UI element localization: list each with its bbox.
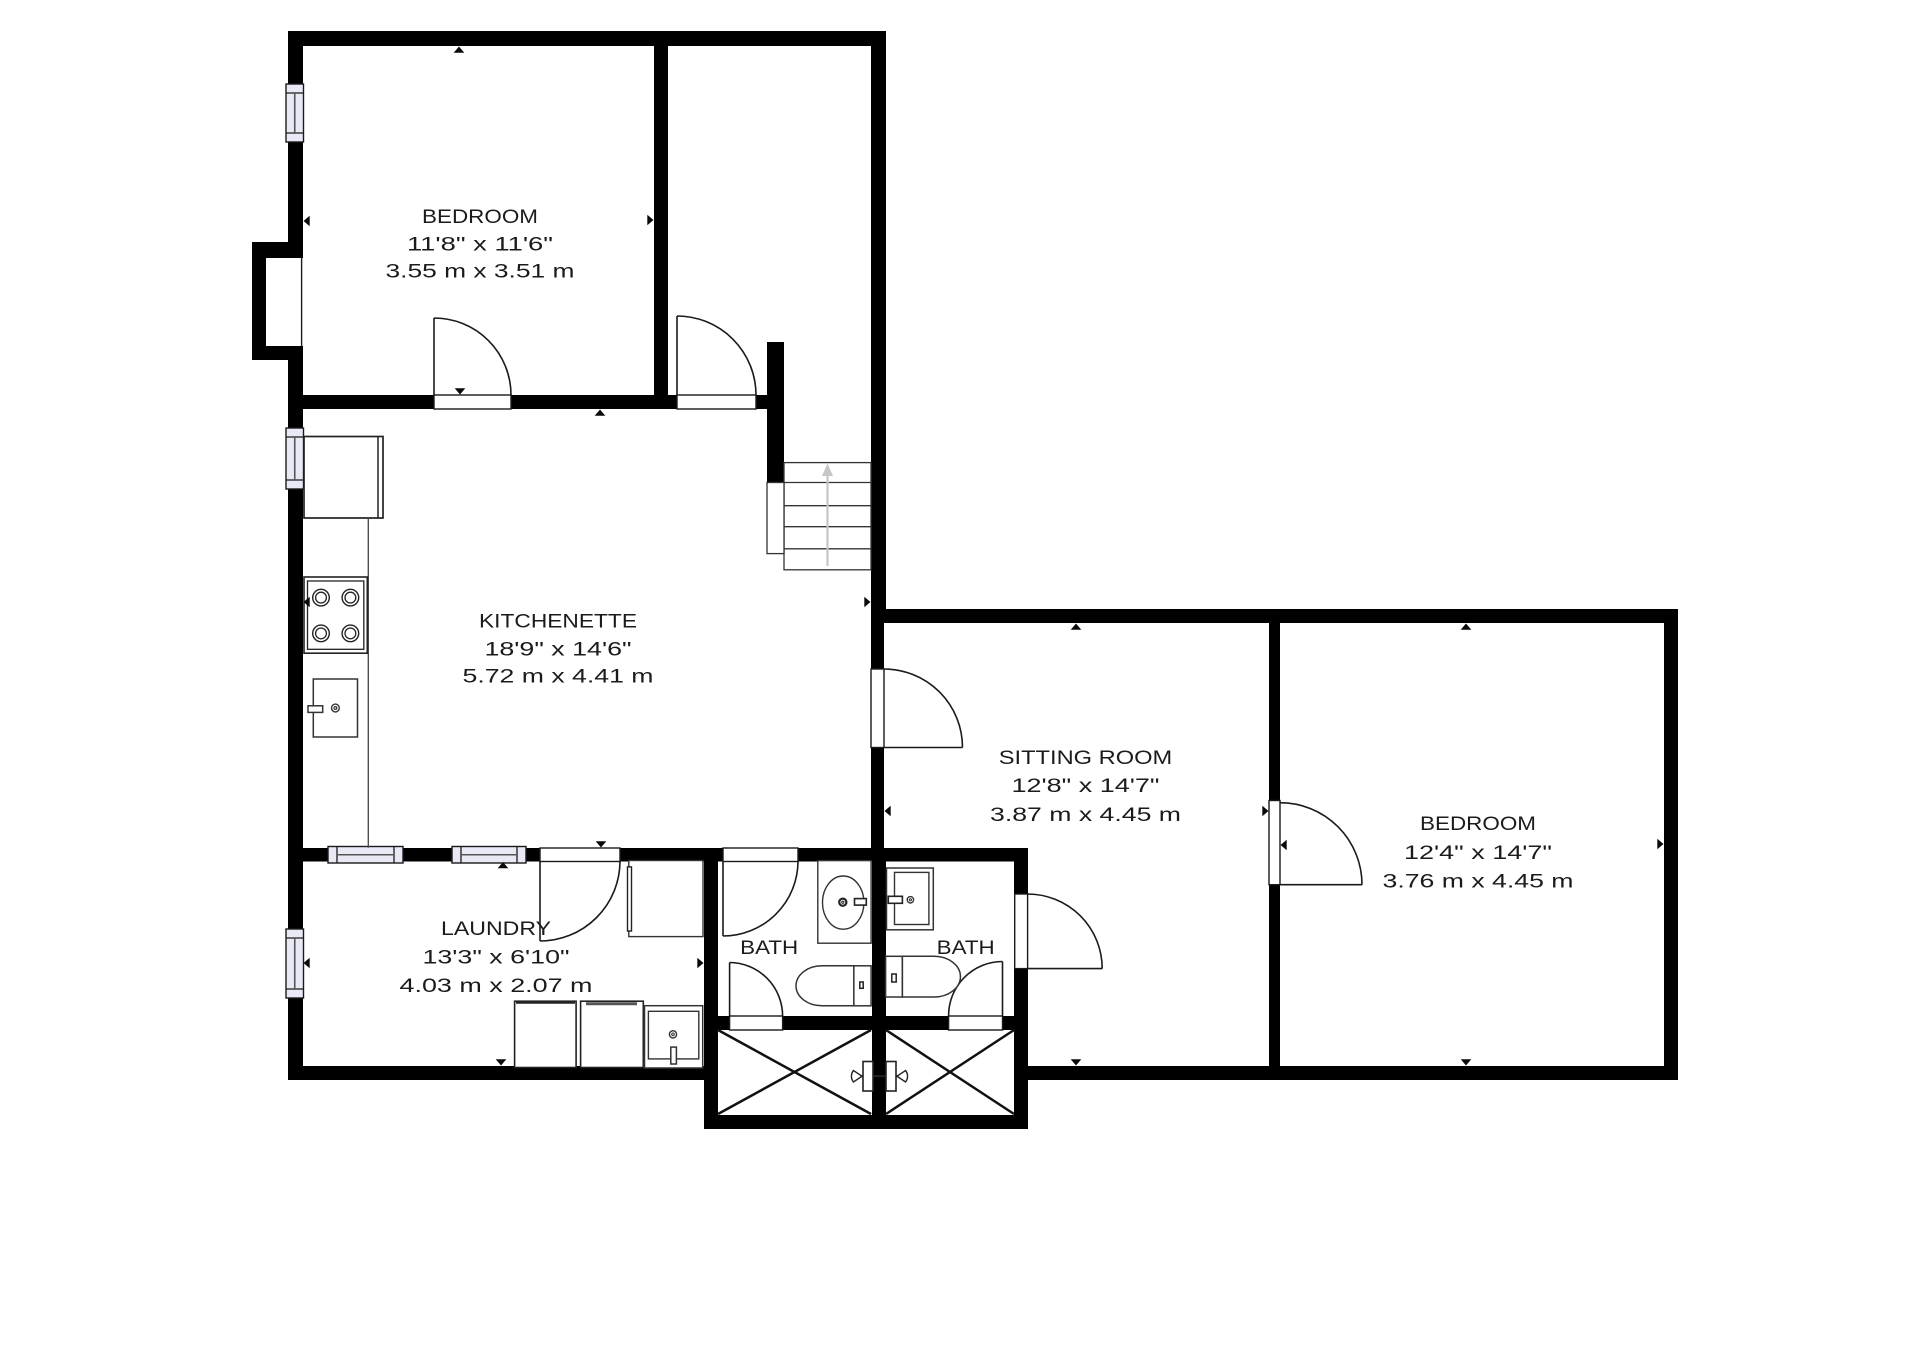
svg-text:BATH: BATH (937, 937, 995, 959)
svg-text:3.76 m x 4.45 m: 3.76 m x 4.45 m (1383, 870, 1574, 892)
svg-text:11'8" x 11'6": 11'8" x 11'6" (407, 234, 553, 256)
svg-text:KITCHENETTE: KITCHENETTE (479, 610, 637, 632)
svg-text:13'3" x 6'10": 13'3" x 6'10" (423, 946, 570, 968)
svg-text:5.72 m x 4.41 m: 5.72 m x 4.41 m (463, 666, 654, 688)
svg-text:3.55 m x 3.51 m: 3.55 m x 3.51 m (386, 261, 575, 283)
svg-text:BEDROOM: BEDROOM (422, 206, 538, 228)
svg-text:BATH: BATH (740, 937, 798, 959)
svg-text:LAUNDRY: LAUNDRY (441, 918, 551, 940)
svg-text:3.87 m x 4.45 m: 3.87 m x 4.45 m (990, 804, 1181, 826)
svg-text:BEDROOM: BEDROOM (1420, 813, 1536, 835)
svg-text:18'9" x 14'6": 18'9" x 14'6" (485, 638, 632, 660)
svg-text:12'4" x 14'7": 12'4" x 14'7" (1404, 842, 1552, 864)
svg-text:SITTING ROOM: SITTING ROOM (999, 747, 1173, 769)
svg-text:4.03 m x 2.07 m: 4.03 m x 2.07 m (400, 975, 593, 997)
svg-text:12'8" x 14'7": 12'8" x 14'7" (1012, 775, 1160, 797)
